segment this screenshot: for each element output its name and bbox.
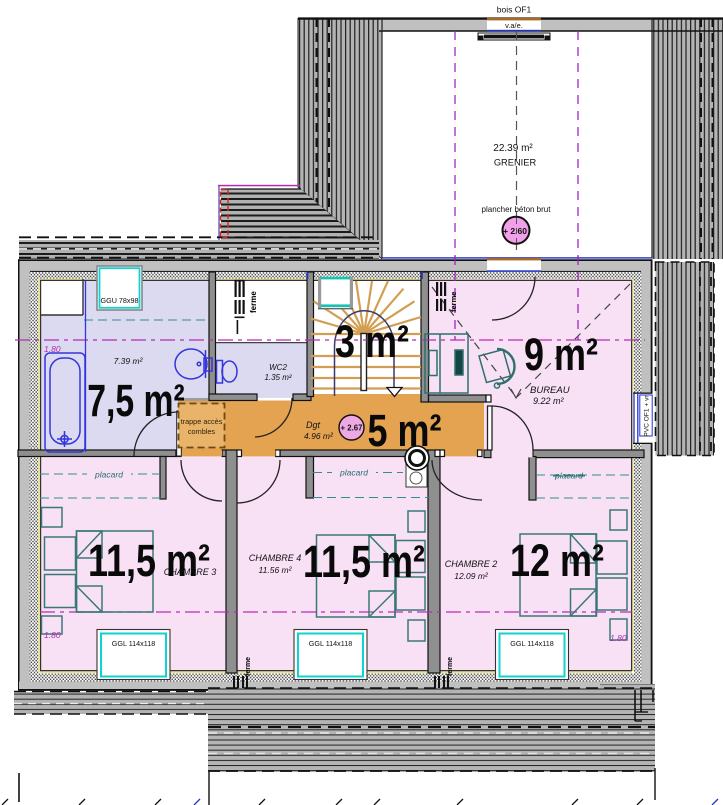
svg-text:GGU 78x98: GGU 78x98	[101, 296, 139, 305]
svg-text:ferme: ferme	[249, 291, 258, 313]
svg-text:GRENIER: GRENIER	[494, 158, 537, 168]
svg-text:placard: placard	[339, 468, 368, 478]
svg-text:ferme: ferme	[449, 292, 458, 312]
svg-text:22.39 m²: 22.39 m²	[493, 143, 533, 154]
svg-text:GGL 114x118: GGL 114x118	[510, 639, 553, 648]
svg-text:ferme: ferme	[447, 657, 454, 676]
svg-text:WC2: WC2	[269, 363, 287, 372]
svg-text:trappe accès: trappe accès	[181, 417, 223, 426]
svg-text:Dgt: Dgt	[306, 420, 321, 430]
svg-text:+ 2.60: + 2.60	[503, 226, 527, 236]
svg-text:CHAMBRE 2: CHAMBRE 2	[445, 559, 498, 569]
svg-text:1.35 m²: 1.35 m²	[264, 373, 291, 382]
svg-text:GGL 114x118: GGL 114x118	[112, 639, 155, 648]
svg-text:PVC OF1 + vr: PVC OF1 + vr	[644, 395, 651, 437]
svg-text:7.39 m²: 7.39 m²	[114, 356, 144, 366]
svg-text:CHAMBRE 4: CHAMBRE 4	[249, 553, 302, 563]
svg-text:BUREAU: BUREAU	[530, 385, 570, 396]
svg-text:+ 2.67: + 2.67	[341, 424, 363, 433]
svg-text:1.80: 1.80	[44, 630, 61, 640]
svg-text:5 m²: 5 m²	[367, 405, 441, 456]
svg-text:3 m²: 3 m²	[335, 316, 409, 367]
svg-text:1.80: 1.80	[44, 344, 61, 354]
svg-text:12.09 m²: 12.09 m²	[454, 571, 489, 581]
svg-text:bois OF1: bois OF1	[497, 5, 532, 15]
svg-text:4.96 m²: 4.96 m²	[304, 431, 334, 441]
svg-text:1.80: 1.80	[610, 633, 627, 643]
svg-text:ferme: ferme	[245, 657, 252, 676]
svg-text:plancher béton brut: plancher béton brut	[482, 205, 552, 214]
svg-text:v.a/e.: v.a/e.	[505, 21, 523, 30]
svg-text:GGL 114x118: GGL 114x118	[309, 639, 352, 648]
svg-text:11.56 m²: 11.56 m²	[259, 565, 293, 575]
svg-text:combles: combles	[188, 427, 216, 436]
svg-text:7,5 m²: 7,5 m²	[87, 376, 185, 426]
svg-text:9.22 m²: 9.22 m²	[533, 396, 565, 406]
svg-text:placard: placard	[94, 470, 123, 480]
svg-text:11,5 m²: 11,5 m²	[303, 536, 425, 587]
svg-text:12 m²: 12 m²	[510, 535, 604, 586]
svg-text:11,5 m²: 11,5 m²	[88, 535, 210, 586]
svg-text:9 m²: 9 m²	[524, 329, 598, 380]
